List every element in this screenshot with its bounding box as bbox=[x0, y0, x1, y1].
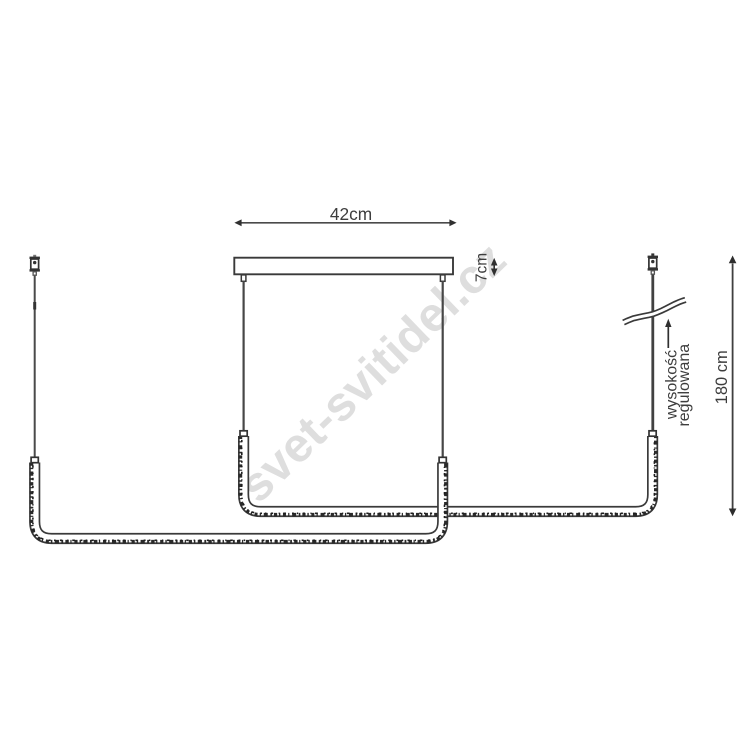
svg-text:180 cm: 180 cm bbox=[713, 350, 731, 404]
svg-text:7cm: 7cm bbox=[473, 253, 490, 282]
svg-text:42cm: 42cm bbox=[330, 204, 372, 224]
svg-text:regulowana: regulowana bbox=[676, 344, 693, 427]
